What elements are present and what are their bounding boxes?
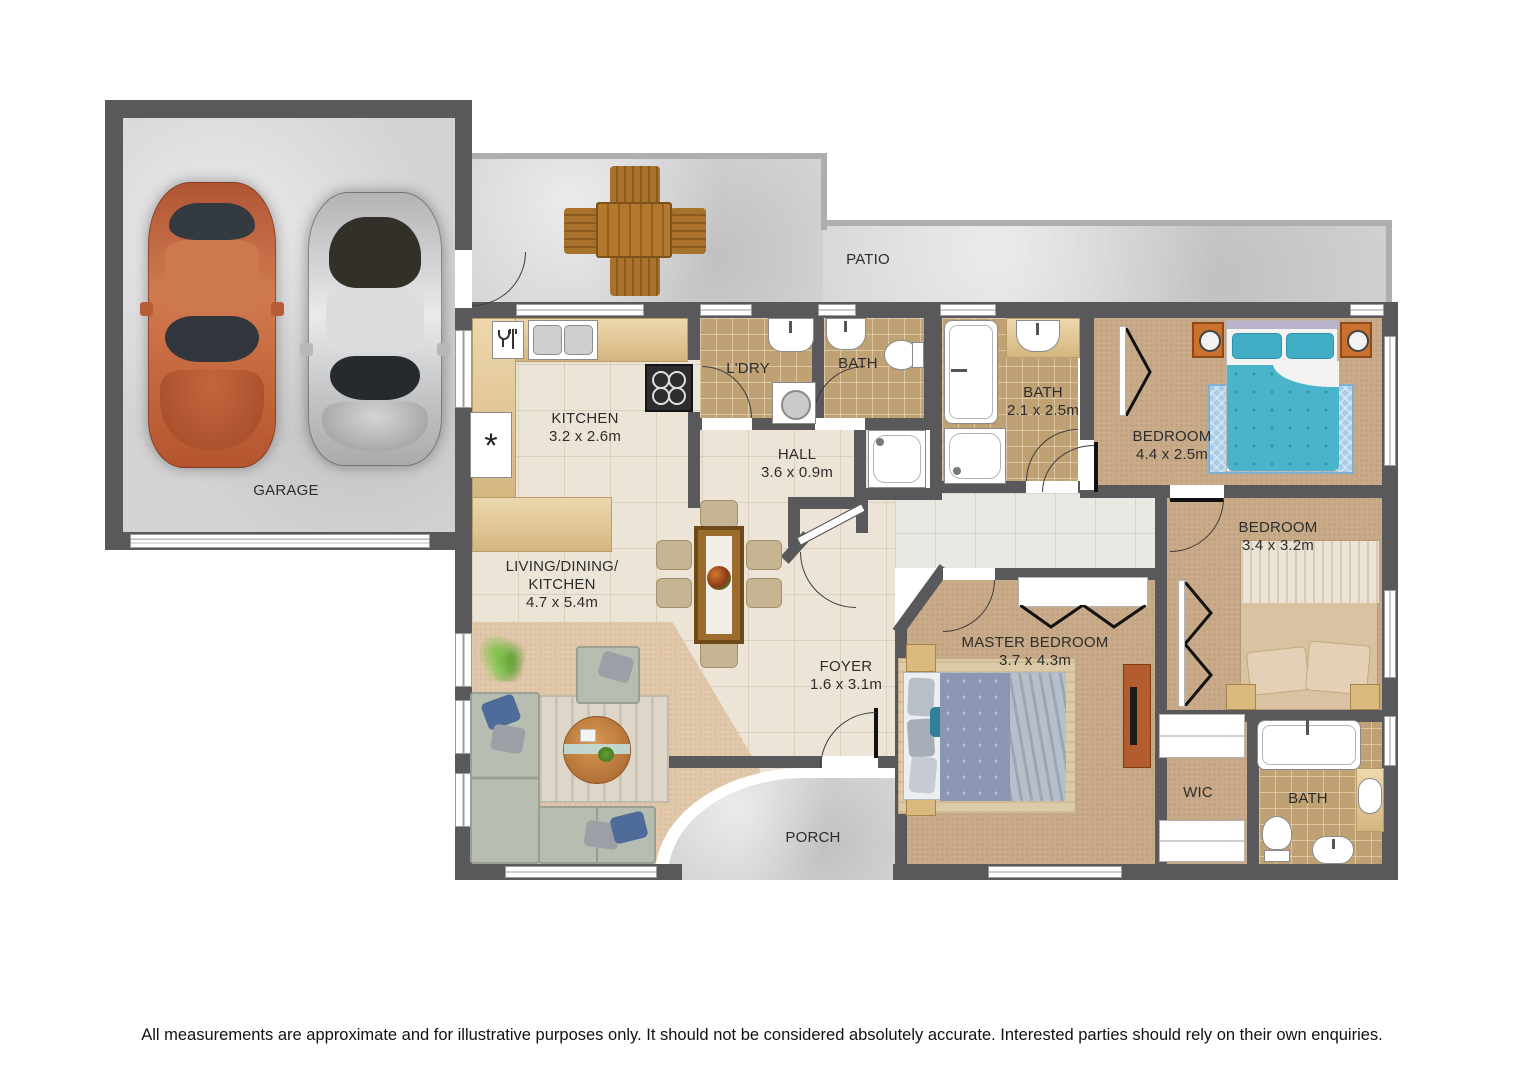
room-name: MASTER BEDROOM: [962, 634, 1109, 652]
room-name: BATH: [1007, 384, 1079, 402]
kitchen-peninsula: [472, 497, 612, 552]
door-opening: [702, 418, 752, 430]
tv: [1130, 687, 1137, 745]
car-windshield: [330, 356, 420, 400]
burner: [668, 387, 686, 405]
room-name: HALL: [761, 446, 833, 464]
window: [1350, 304, 1384, 316]
patio-chair: [564, 208, 600, 254]
window: [505, 866, 657, 878]
throw-blanket: [1010, 673, 1066, 801]
door-opening: [1170, 485, 1224, 498]
window: [455, 633, 472, 687]
floorplan-canvas: *: [0, 0, 1524, 1080]
bifold-door: [1185, 582, 1213, 706]
room-dims: 3.2 x 2.6m: [549, 428, 621, 446]
patio-chair: [670, 208, 706, 254]
pillow: [908, 756, 937, 794]
garage-wall: [105, 100, 123, 550]
plant: [480, 636, 526, 682]
wall-kitchen-divider: [688, 302, 700, 360]
lamp: [1199, 330, 1221, 352]
patio-edge: [823, 220, 1392, 226]
tap: [789, 321, 792, 333]
bathtub: [1257, 720, 1361, 770]
wall-front: [878, 756, 895, 768]
room-dims: 3.6 x 0.9m: [761, 464, 833, 482]
pillow: [490, 723, 526, 754]
closet-track: [1178, 580, 1185, 707]
headboard: [1227, 321, 1339, 329]
sink-bowl: [564, 325, 593, 355]
window: [700, 304, 752, 316]
patio-floor-right: [823, 224, 1392, 310]
room-label-bath-top: BATH: [838, 355, 878, 373]
room-label-kitchen: KITCHEN 3.2 x 2.6m: [549, 410, 621, 446]
patio-edge: [1386, 220, 1392, 312]
wall-bottom: [893, 864, 1398, 880]
room-name: BEDROOM: [1239, 519, 1318, 537]
dining-chair: [656, 578, 692, 608]
nightstand: [1340, 322, 1372, 358]
wall-bedrooms-divider: [1080, 485, 1398, 498]
tv-unit: [1123, 664, 1151, 768]
window: [1384, 590, 1396, 678]
bath-basin: [1312, 836, 1354, 864]
room-label-master: MASTER BEDROOM 3.7 x 4.3m: [962, 634, 1109, 670]
room-label-bath-ensuite: BATH: [1288, 790, 1328, 808]
window: [988, 866, 1122, 878]
car-orange: [148, 182, 276, 468]
room-label-wic: WIC: [1183, 784, 1213, 802]
room-dims: 2.1 x 2.5m: [1007, 402, 1079, 420]
vanity-basin: [1016, 320, 1060, 352]
car-silver: [308, 192, 442, 466]
car-hood: [160, 370, 263, 450]
pillow: [1286, 333, 1334, 359]
room-label-living: LIVING/DINING/ KITCHEN 4.7 x 5.4m: [506, 558, 619, 612]
dining-chair: [656, 540, 692, 570]
cooktop: [645, 364, 693, 412]
shower-head: [876, 438, 884, 446]
toilet-tank: [1264, 850, 1290, 862]
room-label-garage: GARAGE: [253, 482, 318, 500]
nightstand: [1226, 684, 1256, 710]
window: [1384, 716, 1396, 766]
car-mirror: [271, 302, 284, 316]
room-name: LIVING/DINING/: [506, 558, 619, 576]
coffee-table: [563, 716, 631, 784]
room-name: BEDROOM: [1133, 428, 1212, 446]
door-opening: [455, 250, 472, 308]
patio-chair: [610, 166, 660, 206]
door-leaf: [1094, 442, 1098, 492]
dining-table: [694, 526, 744, 644]
sink-bowl: [533, 325, 562, 355]
washer-drum: [781, 390, 811, 420]
room-label-bath-main: BATH 2.1 x 2.5m: [1007, 384, 1079, 420]
room-dims: 1.6 x 3.1m: [810, 676, 882, 694]
room-label-laundry: L'DRY: [726, 360, 770, 378]
dining-chair: [746, 540, 782, 570]
bed-double: [1226, 320, 1338, 472]
car-hood: [322, 402, 428, 451]
wine-glass-icon: [502, 338, 504, 347]
bath-basin: [826, 318, 866, 350]
room-label-bedroom-right: BEDROOM 3.4 x 3.2m: [1239, 519, 1318, 555]
pillow: [1232, 333, 1282, 359]
garage-wall: [105, 100, 472, 118]
tub-inner: [949, 325, 993, 419]
dining-chair: [700, 640, 738, 668]
fork-icon: [509, 329, 517, 334]
bed-double: [903, 672, 1065, 800]
table-plant: [598, 747, 614, 762]
window: [818, 304, 856, 316]
room-name: BATH: [1288, 790, 1328, 808]
shower-head: [953, 467, 961, 475]
car-rear-window: [169, 203, 255, 240]
dining-chair: [700, 500, 738, 528]
tub-inner: [1262, 725, 1356, 765]
kitchen-cabinet: [492, 321, 524, 359]
tap: [1332, 839, 1335, 849]
corridor-floor: [895, 493, 1155, 568]
room-dims: 3.7 x 4.3m: [962, 652, 1109, 670]
disclaimer-text: All measurements are approximate and for…: [0, 1026, 1524, 1045]
car-windshield: [165, 316, 258, 361]
car-mirror: [140, 302, 153, 316]
shower: [944, 428, 1006, 484]
master-wardrobe: [1018, 577, 1148, 607]
window: [1384, 336, 1396, 466]
lamp: [1347, 330, 1369, 352]
decor-card: [580, 729, 596, 742]
room-name: GARAGE: [253, 482, 318, 500]
room-name: L'DRY: [726, 360, 770, 378]
garage-door: [130, 534, 430, 548]
car-mirror: [300, 343, 313, 357]
wall-front: [655, 756, 822, 768]
table-runner: [564, 744, 630, 754]
room-label-porch: PORCH: [785, 829, 840, 847]
room-dims: 4.7 x 5.4m: [506, 594, 619, 612]
vanity-basin: [1358, 778, 1382, 814]
room-name: FOYER: [810, 658, 882, 676]
nightstand: [1350, 684, 1380, 710]
tap: [951, 369, 967, 372]
car-cabin: [326, 288, 424, 353]
kitchen-sink: [528, 320, 598, 360]
nightstand: [906, 644, 936, 672]
dining-chair: [746, 578, 782, 608]
patio-table: [596, 202, 672, 258]
wic-storage: [1159, 714, 1245, 758]
car-roof-glass: [329, 217, 421, 288]
window: [455, 330, 472, 408]
room-label-hall: HALL 3.6 x 0.9m: [761, 446, 833, 482]
tap: [844, 321, 847, 332]
room-name: PATIO: [846, 251, 890, 269]
centerpiece: [707, 566, 731, 590]
duvet: [940, 673, 1018, 801]
room-dims: 3.4 x 3.2m: [1239, 537, 1318, 555]
nightstand: [1192, 322, 1224, 358]
bifold-door: [1020, 605, 1146, 629]
tap: [1036, 323, 1039, 335]
patio-edge: [821, 153, 827, 230]
washing-machine: [772, 382, 816, 424]
car-mirror: [437, 343, 450, 357]
patio-edge: [461, 153, 827, 159]
window: [516, 304, 644, 316]
shower: [868, 430, 926, 488]
window: [940, 304, 996, 316]
room-dims: 4.4 x 2.5m: [1133, 446, 1212, 464]
toilet: [1262, 816, 1292, 850]
bathtub: [944, 320, 998, 424]
room-name: PORCH: [785, 829, 840, 847]
room-label-patio: PATIO: [846, 251, 890, 269]
room-label-foyer: FOYER 1.6 x 3.1m: [810, 658, 882, 694]
room-name: WIC: [1183, 784, 1213, 802]
car-roof: [165, 240, 258, 314]
door-opening: [943, 568, 995, 580]
wic-storage: [1159, 820, 1245, 862]
bifold-door: [1126, 328, 1152, 416]
room-name: KITCHEN: [549, 410, 621, 428]
room-name: BATH: [838, 355, 878, 373]
fridge-icon: *: [484, 427, 497, 465]
fridge: *: [470, 412, 512, 478]
room-name: KITCHEN: [506, 576, 619, 594]
patio-chair: [610, 256, 660, 296]
room-label-bedroom-top: BEDROOM 4.4 x 2.5m: [1133, 428, 1212, 464]
wall-bath-main-left: [930, 302, 942, 493]
closet-track: [1119, 326, 1126, 416]
laundry-sink: [768, 318, 814, 352]
toilet-tank: [912, 342, 924, 368]
tap: [1306, 719, 1309, 735]
door-opening: [815, 418, 865, 430]
